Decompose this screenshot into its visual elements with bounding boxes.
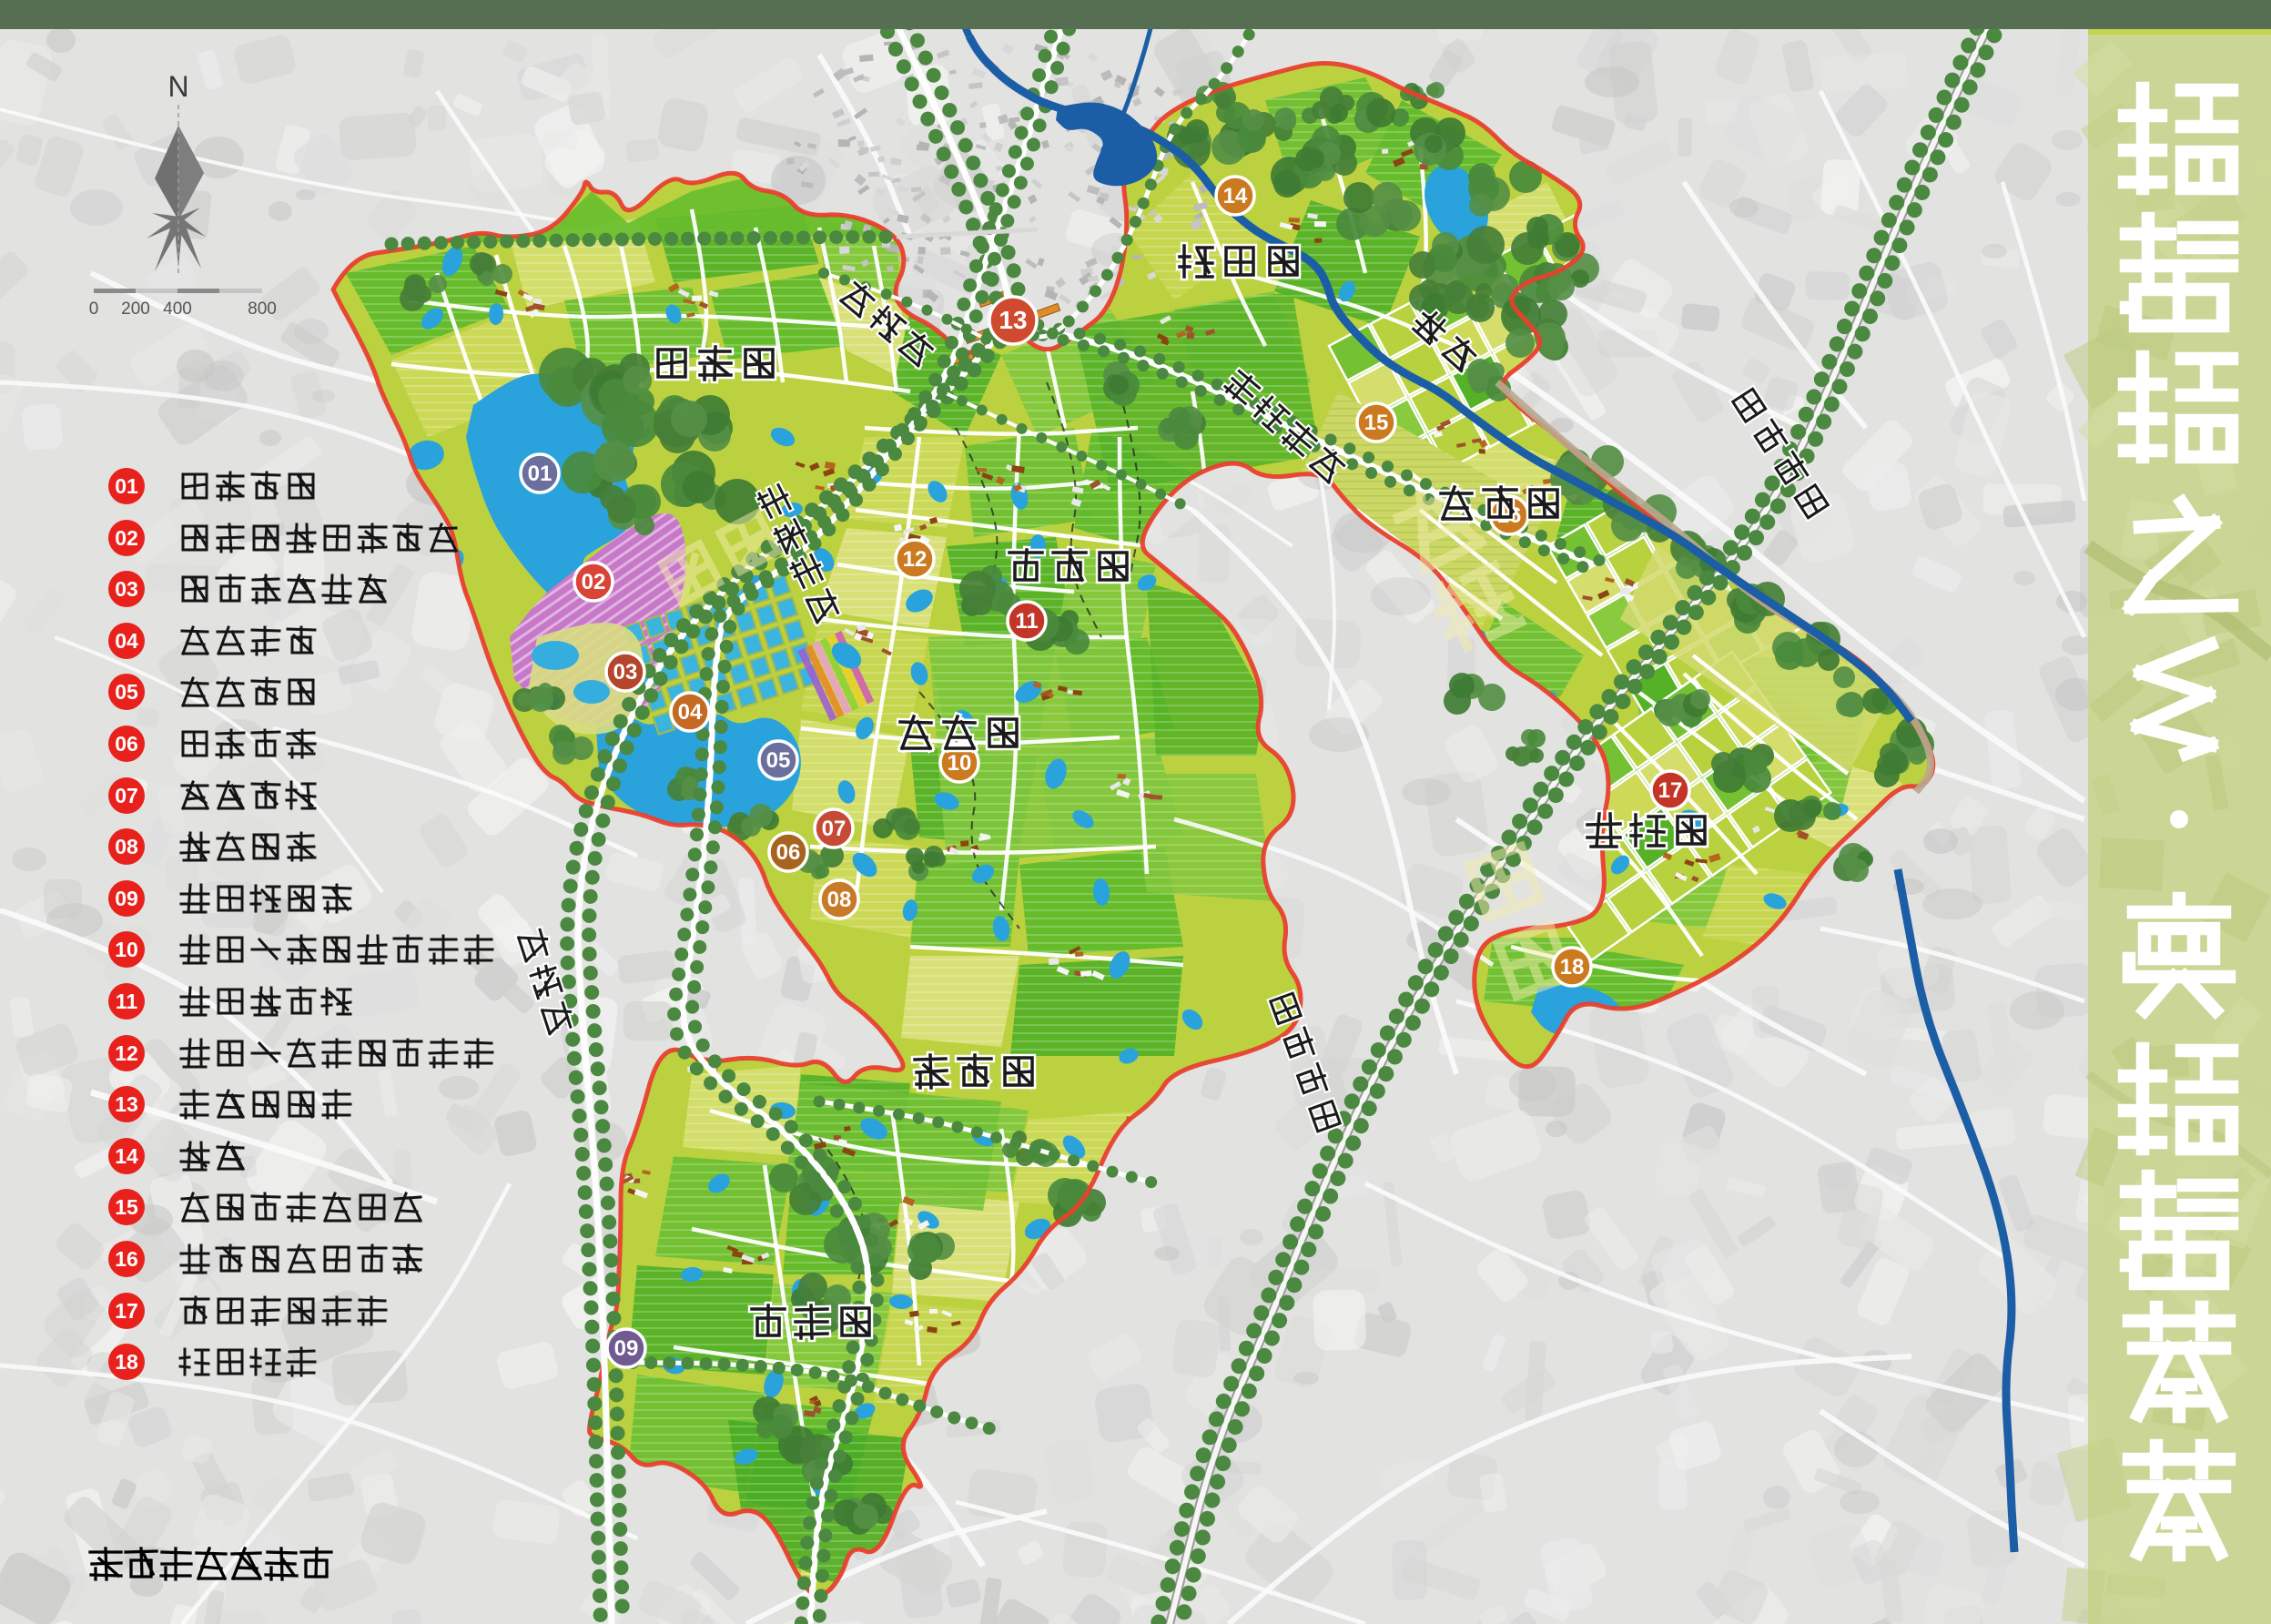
svg-text:07: 07	[822, 817, 847, 841]
svg-text:05: 05	[115, 680, 138, 704]
svg-text:13: 13	[115, 1092, 138, 1116]
svg-text:15: 15	[1364, 411, 1389, 435]
svg-text:800: 800	[248, 299, 277, 319]
svg-text:01: 01	[528, 462, 553, 486]
svg-text:17: 17	[115, 1299, 138, 1323]
svg-text:03: 03	[613, 660, 638, 685]
svg-text:03: 03	[115, 577, 138, 601]
svg-text:02: 02	[582, 570, 606, 594]
svg-text:18: 18	[1560, 955, 1585, 979]
svg-text:15: 15	[115, 1195, 138, 1219]
svg-text:05: 05	[766, 748, 791, 773]
svg-text:09: 09	[115, 887, 138, 910]
svg-text:08: 08	[827, 888, 852, 912]
svg-text:09: 09	[614, 1336, 639, 1361]
svg-text:04: 04	[115, 629, 138, 653]
svg-text:18: 18	[115, 1350, 138, 1374]
svg-text:07: 07	[115, 784, 138, 807]
svg-text:10: 10	[115, 938, 138, 961]
svg-text:10: 10	[948, 751, 972, 776]
svg-text:400: 400	[163, 299, 192, 319]
svg-text:14: 14	[1223, 184, 1248, 208]
svg-text:17: 17	[1658, 778, 1683, 803]
svg-text:11: 11	[116, 990, 138, 1013]
svg-text:06: 06	[115, 732, 138, 756]
svg-text:13: 13	[999, 306, 1027, 334]
svg-text:0: 0	[89, 299, 99, 319]
svg-text:06: 06	[776, 840, 801, 865]
svg-text:04: 04	[678, 700, 703, 725]
svg-text:14: 14	[115, 1144, 138, 1168]
svg-text:12: 12	[115, 1041, 138, 1065]
svg-text:200: 200	[121, 299, 150, 319]
svg-text:08: 08	[115, 835, 138, 858]
svg-text:N: N	[167, 70, 188, 103]
svg-text:01: 01	[115, 474, 138, 498]
svg-text:11: 11	[1015, 609, 1038, 634]
svg-text:02: 02	[115, 526, 138, 550]
svg-text:12: 12	[903, 547, 928, 572]
svg-text:16: 16	[115, 1247, 138, 1271]
